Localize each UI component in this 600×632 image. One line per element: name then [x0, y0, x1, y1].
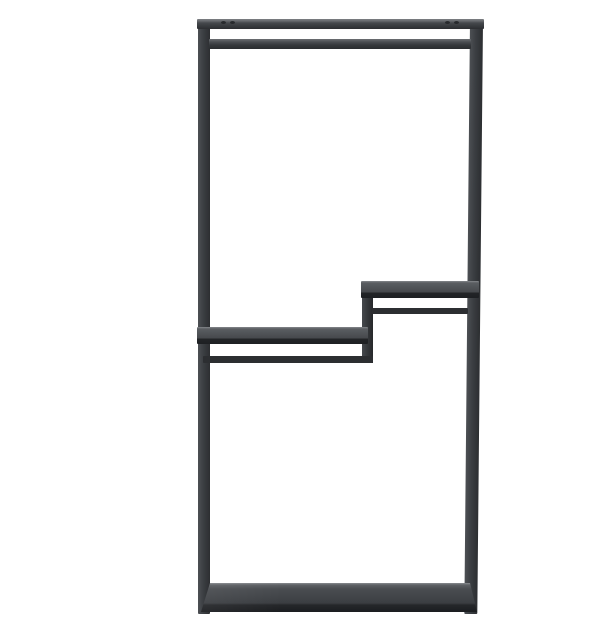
right-post	[464, 20, 483, 614]
lower-shelf	[197, 327, 368, 344]
bottom-shelf	[198, 583, 480, 612]
left-post	[198, 20, 210, 614]
hanging-rail	[209, 39, 471, 49]
upper-shelf	[361, 281, 479, 298]
product-photo	[40, 16, 600, 616]
screw-icon	[454, 21, 459, 24]
upper-shelf-support-bar	[372, 308, 468, 314]
screw-icon	[221, 21, 226, 24]
screw-icon	[445, 21, 450, 24]
screw-icon	[230, 21, 235, 24]
top-bar	[197, 19, 484, 29]
lower-shelf-support-bar	[203, 356, 373, 363]
